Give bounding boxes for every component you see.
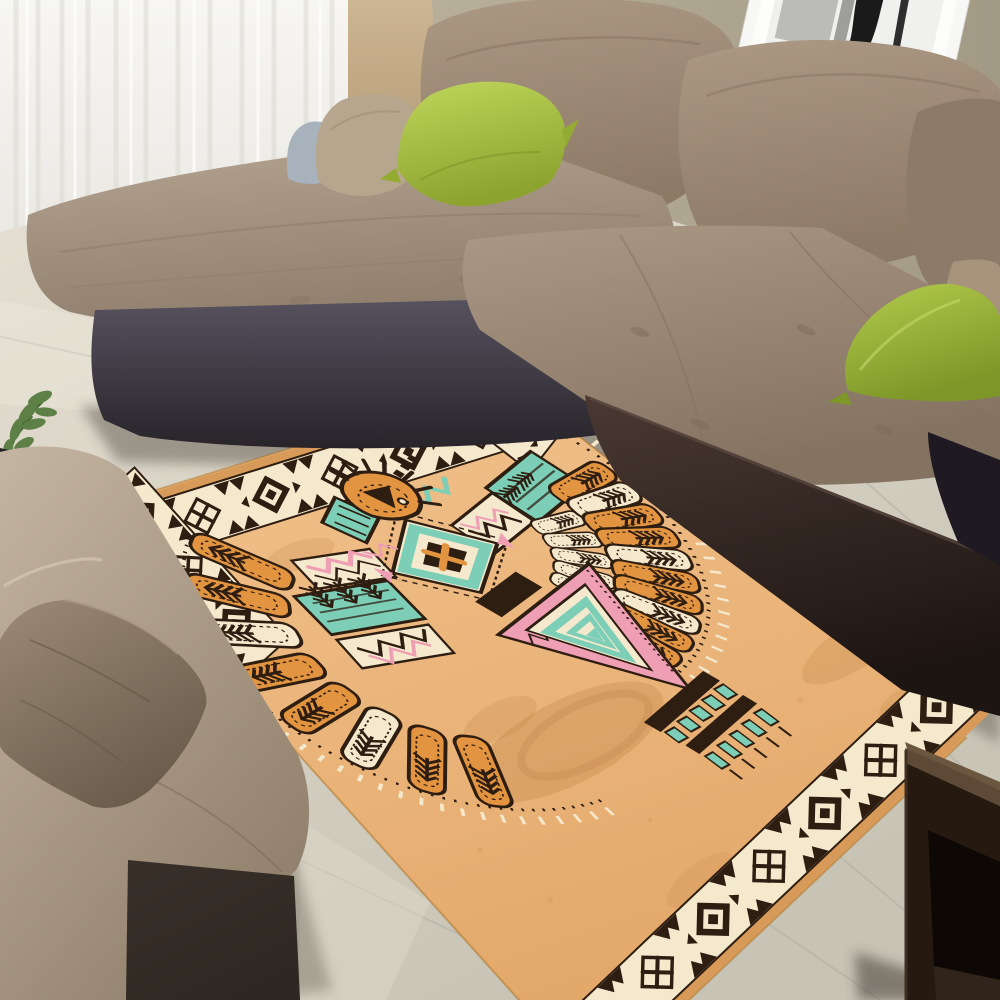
living-room-photo — [0, 0, 1000, 1000]
screenshot-root — [0, 0, 1000, 1000]
coffee-table — [905, 742, 1000, 1000]
